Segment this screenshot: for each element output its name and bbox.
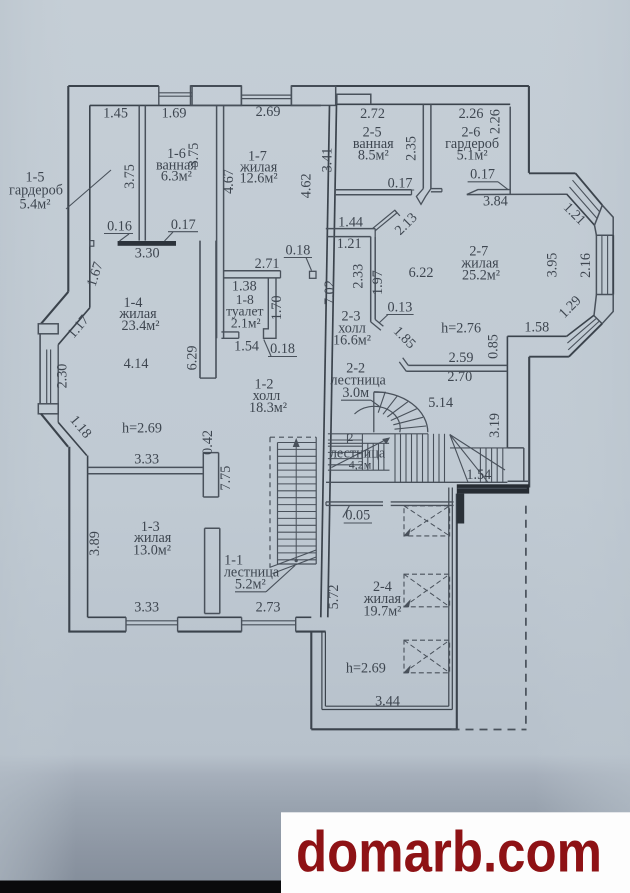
svg-text:2.30: 2.30	[55, 364, 71, 389]
svg-text:3.33: 3.33	[134, 452, 159, 468]
svg-text:2.72: 2.72	[360, 106, 385, 122]
svg-text:1.70: 1.70	[269, 295, 285, 320]
svg-text:0.17: 0.17	[388, 176, 413, 192]
svg-text:3.41: 3.41	[320, 148, 336, 173]
svg-text:0.18: 0.18	[285, 243, 310, 259]
svg-text:5.1м²: 5.1м²	[457, 148, 488, 164]
svg-text:0.17: 0.17	[171, 217, 196, 233]
svg-text:5.14: 5.14	[428, 395, 453, 411]
svg-text:23.4м²: 23.4м²	[121, 318, 159, 334]
svg-text:1.21: 1.21	[337, 236, 362, 252]
svg-text:3.0м: 3.0м	[342, 385, 369, 401]
svg-text:2.26: 2.26	[487, 109, 503, 134]
svg-text:h=2.69: h=2.69	[346, 661, 386, 677]
svg-text:2.26: 2.26	[459, 106, 484, 122]
svg-text:8.5м²: 8.5м²	[358, 148, 389, 164]
svg-text:3.95: 3.95	[545, 253, 561, 278]
svg-text:3.19: 3.19	[487, 413, 503, 438]
svg-text:2: 2	[347, 430, 353, 444]
svg-text:3.84: 3.84	[483, 194, 508, 210]
svg-text:1.97: 1.97	[370, 270, 386, 295]
svg-text:2.59: 2.59	[449, 350, 474, 366]
svg-text:7.75: 7.75	[218, 466, 234, 491]
svg-text:5.4м²: 5.4м²	[20, 197, 51, 213]
svg-text:1.54: 1.54	[466, 467, 491, 483]
svg-text:0.05: 0.05	[345, 508, 370, 524]
svg-text:4.62: 4.62	[299, 173, 315, 198]
svg-text:0.18: 0.18	[270, 341, 295, 357]
svg-text:12.6м²: 12.6м²	[240, 171, 278, 187]
svg-text:3.44: 3.44	[375, 694, 400, 710]
svg-text:6.22: 6.22	[409, 265, 434, 281]
svg-text:16.6м²: 16.6м²	[333, 333, 371, 349]
svg-text:3.89: 3.89	[87, 531, 103, 556]
svg-text:4,2м: 4,2м	[349, 458, 372, 472]
svg-text:2.70: 2.70	[447, 369, 472, 385]
svg-text:0.13: 0.13	[387, 300, 412, 316]
svg-text:h=2.69: h=2.69	[122, 421, 162, 437]
svg-text:1.58: 1.58	[524, 320, 549, 336]
svg-text:h=2.76: h=2.76	[441, 321, 481, 337]
svg-text:1.45: 1.45	[103, 106, 128, 122]
svg-text:25.2м²: 25.2м²	[462, 268, 500, 284]
svg-text:2.35: 2.35	[403, 136, 419, 161]
svg-text:2.1м²: 2.1м²	[231, 316, 261, 331]
svg-text:0.17: 0.17	[470, 167, 495, 183]
svg-text:2.16: 2.16	[578, 253, 594, 278]
svg-text:4.67: 4.67	[221, 169, 237, 194]
svg-text:2.73: 2.73	[256, 600, 281, 616]
svg-text:4.14: 4.14	[124, 356, 149, 372]
svg-text:2.69: 2.69	[256, 104, 281, 120]
svg-text:1.69: 1.69	[162, 106, 187, 122]
svg-text:7.02: 7.02	[322, 280, 338, 305]
svg-text:13.0м²: 13.0м²	[133, 543, 171, 559]
svg-text:0.42: 0.42	[200, 430, 216, 455]
svg-text:0.85: 0.85	[486, 334, 502, 359]
svg-text:19.7м²: 19.7м²	[363, 604, 401, 620]
svg-text:5.2м²: 5.2м²	[235, 577, 266, 593]
svg-text:2.71: 2.71	[255, 256, 280, 272]
svg-text:1.54: 1.54	[234, 339, 259, 355]
svg-text:18.3м²: 18.3м²	[249, 400, 287, 416]
svg-text:domarb.com: domarb.com	[296, 821, 602, 885]
svg-text:3.30: 3.30	[135, 246, 160, 262]
svg-text:0.16: 0.16	[107, 219, 132, 235]
svg-text:2.33: 2.33	[350, 264, 366, 289]
svg-text:5.72: 5.72	[326, 584, 342, 609]
svg-text:1.44: 1.44	[338, 215, 363, 231]
svg-text:6.29: 6.29	[185, 345, 201, 370]
svg-text:6.3м²: 6.3м²	[161, 169, 192, 185]
svg-text:3.33: 3.33	[134, 600, 159, 616]
svg-text:3.75: 3.75	[122, 164, 138, 189]
